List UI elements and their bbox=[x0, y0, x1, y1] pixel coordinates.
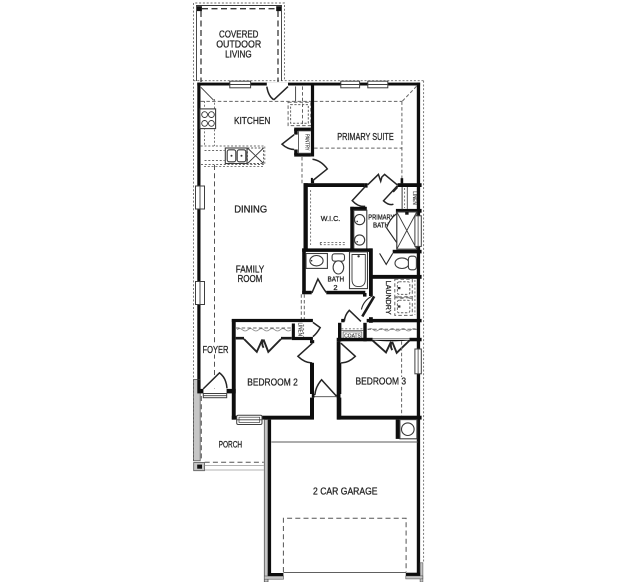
svg-text:BEDROOM 3: BEDROOM 3 bbox=[356, 376, 407, 388]
svg-text:PRIMARY SUITE: PRIMARY SUITE bbox=[337, 131, 394, 143]
svg-text:LINEN: LINEN bbox=[296, 322, 302, 336]
svg-text:FOYER: FOYER bbox=[203, 344, 229, 356]
svg-text:PORCH: PORCH bbox=[219, 440, 243, 450]
svg-text:ROOM: ROOM bbox=[238, 273, 263, 285]
svg-text:W.I.C.: W.I.C. bbox=[321, 214, 341, 223]
svg-text:BEDROOM 2: BEDROOM 2 bbox=[247, 376, 298, 388]
svg-text:KITCHEN: KITCHEN bbox=[234, 115, 271, 127]
svg-text:PANTRY: PANTRY bbox=[303, 134, 309, 151]
svg-text:LIVING: LIVING bbox=[225, 49, 252, 61]
svg-text:LINEN: LINEN bbox=[411, 191, 417, 205]
svg-text:2: 2 bbox=[333, 283, 337, 292]
svg-text:DINING: DINING bbox=[234, 203, 267, 215]
svg-text:2 CAR GARAGE: 2 CAR GARAGE bbox=[313, 486, 378, 498]
svg-text:LAUNDRY: LAUNDRY bbox=[384, 281, 393, 315]
